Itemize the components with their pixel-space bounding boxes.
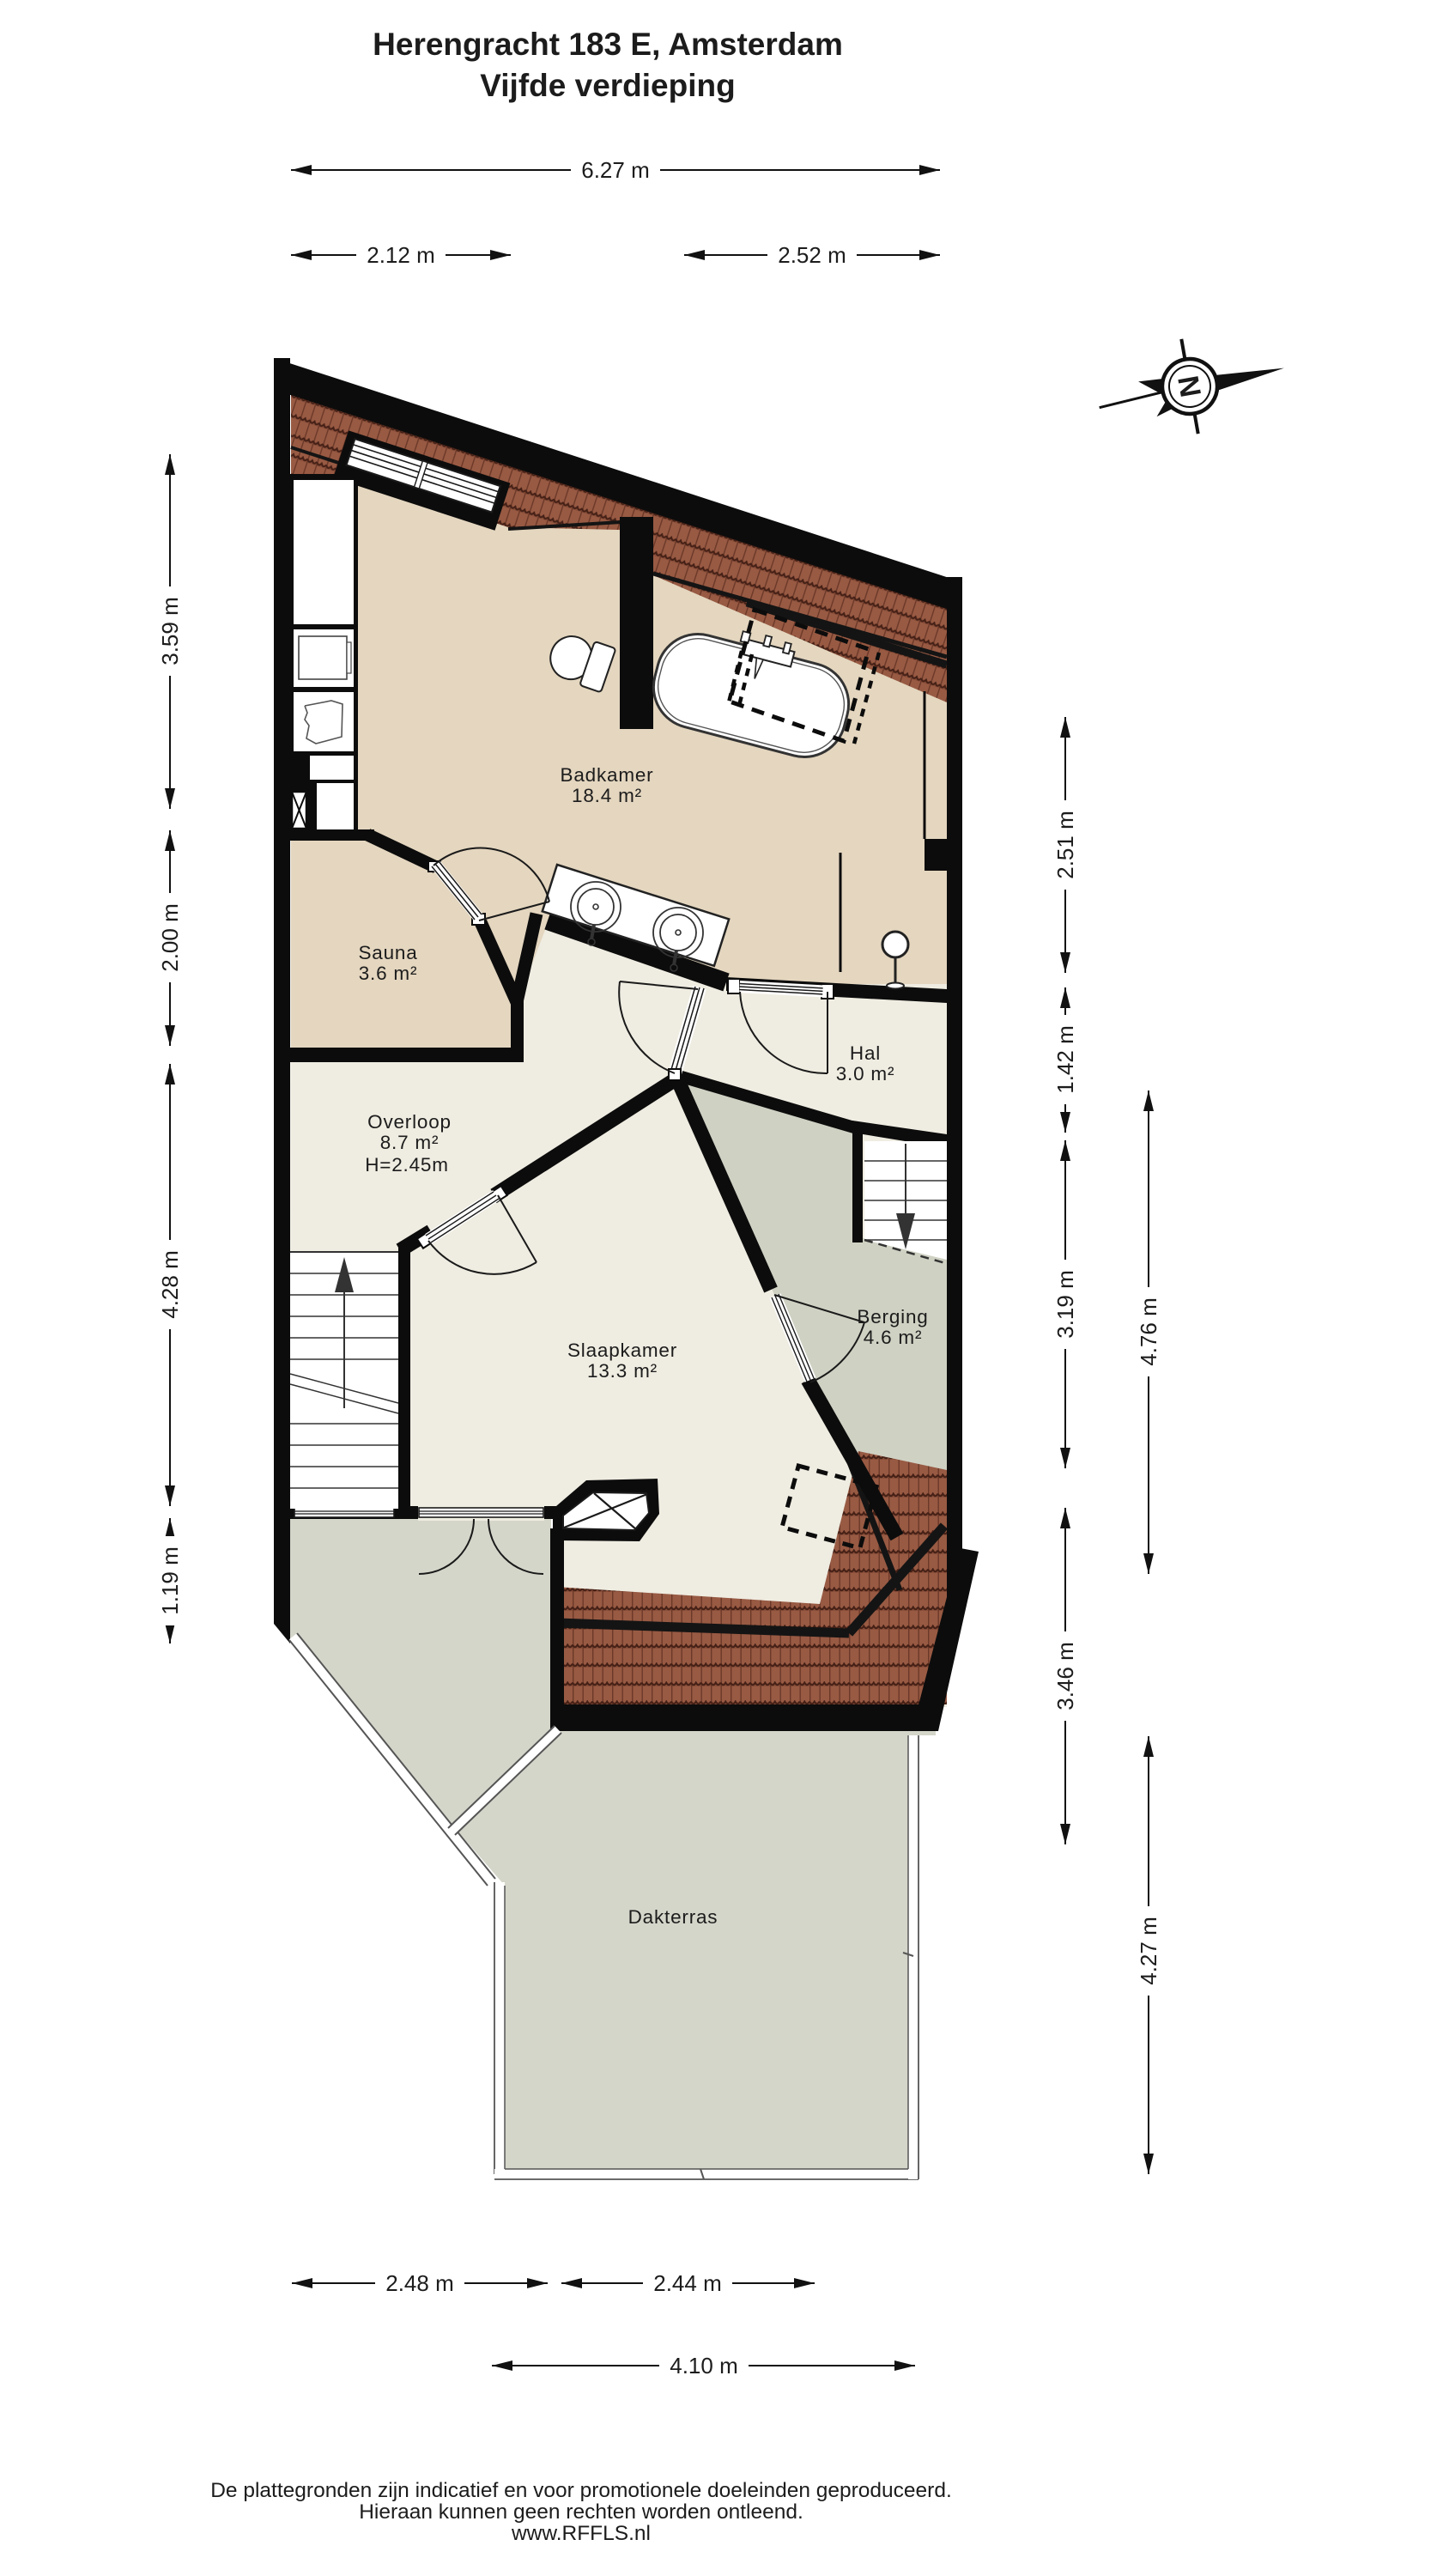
- svg-text:4.27 m: 4.27 m: [1136, 1917, 1161, 1985]
- svg-text:1.19 m: 1.19 m: [157, 1546, 183, 1615]
- svg-text:Overloop: Overloop: [367, 1111, 452, 1133]
- svg-text:Sauna: Sauna: [358, 942, 417, 963]
- svg-text:2.52 m: 2.52 m: [778, 242, 846, 268]
- svg-text:4.10 m: 4.10 m: [670, 2353, 738, 2379]
- svg-text:3.0 m²: 3.0 m²: [836, 1063, 895, 1084]
- svg-text:6.27 m: 6.27 m: [581, 157, 650, 183]
- svg-text:8.7 m²: 8.7 m²: [380, 1132, 440, 1153]
- svg-text:Hieraan kunnen geen rechten wo: Hieraan kunnen geen rechten worden ontle…: [359, 2500, 803, 2524]
- svg-text:2.00 m: 2.00 m: [157, 903, 183, 972]
- svg-text:2.48 m: 2.48 m: [385, 2270, 454, 2296]
- svg-text:3.6 m²: 3.6 m²: [359, 963, 418, 984]
- svg-text:Vijfde verdieping: Vijfde verdieping: [480, 68, 735, 103]
- svg-text:www.RFFLS.nl: www.RFFLS.nl: [511, 2522, 651, 2545]
- svg-text:De plattegronden zijn indicati: De plattegronden zijn indicatief en voor…: [210, 2479, 952, 2502]
- svg-text:Slaapkamer: Slaapkamer: [567, 1340, 677, 1361]
- svg-text:Badkamer: Badkamer: [561, 764, 654, 786]
- svg-text:13.3 m²: 13.3 m²: [587, 1360, 658, 1382]
- svg-text:3.46 m: 3.46 m: [1052, 1642, 1078, 1710]
- svg-text:4.76 m: 4.76 m: [1136, 1297, 1161, 1366]
- svg-text:H=2.45m: H=2.45m: [365, 1154, 449, 1176]
- svg-text:2.51 m: 2.51 m: [1052, 811, 1078, 879]
- svg-text:1.42 m: 1.42 m: [1052, 1025, 1078, 1094]
- svg-text:2.12 m: 2.12 m: [367, 242, 435, 268]
- svg-text:4.28 m: 4.28 m: [157, 1250, 183, 1319]
- svg-text:Berging: Berging: [857, 1306, 928, 1327]
- svg-text:2.44 m: 2.44 m: [653, 2270, 722, 2296]
- svg-text:18.4 m²: 18.4 m²: [572, 785, 642, 806]
- svg-text:Hal: Hal: [850, 1042, 881, 1064]
- svg-text:4.6 m²: 4.6 m²: [864, 1327, 923, 1348]
- svg-text:Dakterras: Dakterras: [628, 1906, 718, 1928]
- svg-text:Herengracht 183 E, Amsterdam: Herengracht 183 E, Amsterdam: [373, 27, 843, 62]
- svg-text:3.59 m: 3.59 m: [157, 597, 183, 665]
- svg-text:3.19 m: 3.19 m: [1052, 1270, 1078, 1339]
